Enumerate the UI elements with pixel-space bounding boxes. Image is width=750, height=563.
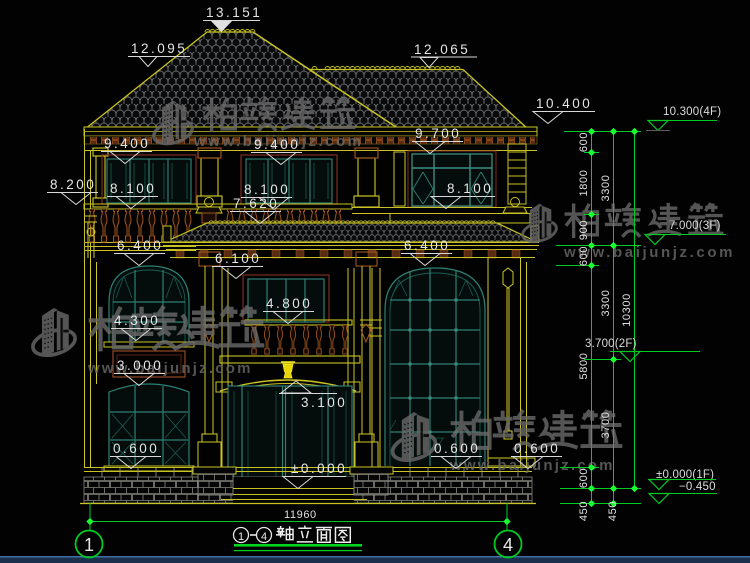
svg-text:9.700: 9.700 bbox=[415, 126, 461, 141]
svg-text:0.600: 0.600 bbox=[113, 441, 159, 456]
svg-text:7.620: 7.620 bbox=[233, 196, 279, 211]
svg-text:600: 600 bbox=[578, 246, 590, 266]
svg-text:6.400: 6.400 bbox=[404, 238, 450, 253]
svg-text:12.095: 12.095 bbox=[131, 41, 187, 56]
svg-text:7.000(3F): 7.000(3F) bbox=[669, 220, 721, 232]
svg-text:1: 1 bbox=[238, 531, 244, 543]
svg-text:10.300(4F): 10.300(4F) bbox=[663, 106, 721, 118]
svg-text:4: 4 bbox=[261, 531, 267, 543]
svg-text:9.400: 9.400 bbox=[254, 137, 300, 152]
svg-text:12.065: 12.065 bbox=[414, 42, 470, 57]
svg-text:6.400: 6.400 bbox=[117, 238, 163, 253]
svg-text:4: 4 bbox=[503, 535, 513, 555]
svg-text:0.600: 0.600 bbox=[514, 441, 560, 456]
svg-text:−0.450: −0.450 bbox=[679, 481, 716, 493]
svg-text:3700: 3700 bbox=[600, 412, 612, 439]
svg-text:www.baijunjz.com: www.baijunjz.com bbox=[87, 360, 253, 377]
svg-text:±0.000: ±0.000 bbox=[291, 461, 347, 476]
svg-text:0.600: 0.600 bbox=[434, 441, 480, 456]
svg-text:4.800: 4.800 bbox=[266, 296, 312, 311]
svg-text:1800: 1800 bbox=[578, 170, 590, 197]
svg-text:3.100: 3.100 bbox=[301, 395, 347, 410]
svg-text:13.151: 13.151 bbox=[206, 5, 262, 20]
svg-text:11960: 11960 bbox=[284, 509, 317, 521]
svg-text:10300: 10300 bbox=[621, 293, 633, 327]
svg-text:4.300: 4.300 bbox=[114, 313, 160, 328]
svg-text:3300: 3300 bbox=[600, 175, 612, 202]
svg-text:8.100: 8.100 bbox=[244, 182, 290, 197]
svg-text:900: 900 bbox=[578, 220, 590, 240]
svg-text:1: 1 bbox=[84, 535, 94, 555]
svg-text:9.400: 9.400 bbox=[104, 136, 150, 151]
svg-text:3.000: 3.000 bbox=[117, 358, 163, 373]
svg-text:600: 600 bbox=[578, 468, 590, 488]
svg-text:8.200: 8.200 bbox=[50, 177, 96, 192]
svg-text:10.400: 10.400 bbox=[536, 96, 592, 111]
svg-text:6.100: 6.100 bbox=[215, 251, 261, 266]
svg-text:3300: 3300 bbox=[600, 290, 612, 317]
svg-text:8.100: 8.100 bbox=[447, 181, 493, 196]
svg-text:450: 450 bbox=[607, 501, 619, 521]
svg-text:450: 450 bbox=[578, 501, 590, 521]
svg-text:5800: 5800 bbox=[578, 353, 590, 380]
svg-text:8.100: 8.100 bbox=[110, 181, 156, 196]
svg-text:600: 600 bbox=[578, 132, 590, 152]
svg-text:3.700(2F): 3.700(2F) bbox=[585, 338, 637, 350]
